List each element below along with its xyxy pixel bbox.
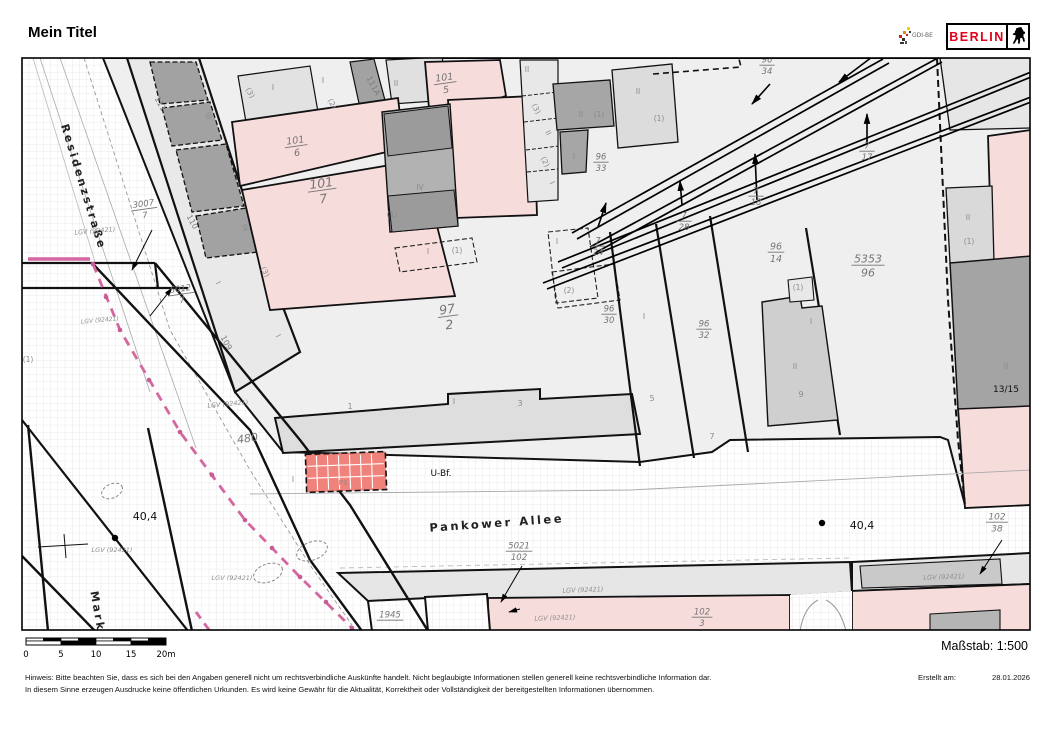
map-label: II — [636, 87, 640, 96]
svg-text:28: 28 — [679, 223, 690, 233]
map-label: (1) — [594, 110, 605, 119]
map-label: I — [556, 237, 558, 246]
svg-text:7: 7 — [864, 142, 870, 152]
map-label: LGV (92421) — [534, 613, 575, 622]
parcel-number: 9614 — [768, 242, 785, 265]
parcel-102-3 — [488, 595, 790, 631]
map-label: LGV (92421) — [212, 574, 253, 582]
svg-text:96: 96 — [762, 56, 773, 66]
map-label: I — [292, 475, 294, 484]
scale-bar: 05101520m — [23, 638, 175, 660]
svg-text:7: 7 — [753, 187, 759, 197]
building — [388, 190, 458, 232]
parcel-number: 9630 — [601, 305, 616, 326]
map-label: II — [793, 362, 797, 371]
map-label: 5 — [649, 394, 654, 403]
svg-text:34: 34 — [762, 67, 773, 77]
svg-text:32: 32 — [699, 331, 710, 341]
map-label: 40,4 — [133, 510, 158, 523]
scale-tick: 5 — [58, 650, 63, 660]
map-label: (1) — [654, 114, 665, 123]
map-label: I — [272, 83, 274, 92]
created-date: 28.01.2026 — [992, 673, 1030, 682]
point-marker — [112, 535, 118, 541]
street-gap — [790, 591, 852, 631]
svg-text:102: 102 — [988, 513, 1005, 523]
building — [553, 80, 614, 130]
map-label: I — [810, 317, 812, 326]
svg-text:102: 102 — [694, 608, 710, 618]
map-label: LGV (92421) — [92, 546, 133, 554]
map-label: LGV (92421) — [923, 572, 964, 581]
map-label: IV — [416, 183, 424, 192]
map-label: II — [579, 110, 583, 119]
svg-text:7: 7 — [681, 212, 687, 222]
map-label: I — [643, 312, 645, 321]
map-label: (1) — [387, 210, 398, 219]
map-label: II — [525, 65, 529, 74]
map-label: I — [427, 247, 429, 256]
created-label: Erstellt am: — [918, 673, 956, 682]
map-canvas: ResidenzstraßePankower AlleeMarkU-Bf.40,… — [0, 0, 1052, 743]
street-notch — [425, 594, 490, 631]
map-label: 3 — [517, 399, 522, 408]
map-label: 9 — [798, 390, 803, 399]
scale-tick: 0 — [23, 650, 28, 660]
map-label: II — [394, 79, 398, 88]
svg-text:18: 18 — [751, 198, 762, 208]
building — [930, 610, 1000, 631]
parcel-number: 1945 — [377, 611, 403, 621]
parcel-pink-right-top — [988, 130, 1031, 265]
svg-text:38: 38 — [991, 524, 1003, 534]
scale-tick: 15 — [126, 650, 137, 660]
map-label: (1) — [23, 355, 34, 364]
map-label: I — [453, 397, 455, 406]
map-label: (2) — [564, 286, 575, 295]
scale-tick: 10 — [91, 650, 102, 660]
parcel-pink-right-low — [958, 402, 1031, 508]
svg-text:24: 24 — [593, 248, 604, 258]
svg-text:5021: 5021 — [508, 542, 530, 552]
disclaimer-line-2: In diesem Sinne erzeugen Ausdrucke keine… — [25, 684, 910, 696]
parcel-number: 9633 — [593, 153, 608, 174]
building — [946, 186, 994, 263]
map-label: 13/15 — [993, 385, 1019, 395]
svg-text:1945: 1945 — [379, 611, 401, 621]
print-page: Mein Titel GDI-BE BERLIN — [0, 0, 1052, 743]
svg-text:102: 102 — [511, 553, 527, 563]
svg-text:3: 3 — [699, 619, 704, 629]
parcel-number: 9632 — [696, 320, 711, 341]
svg-text:96: 96 — [770, 242, 782, 253]
point-marker — [819, 520, 825, 526]
svg-text:5353: 5353 — [854, 253, 882, 266]
map-label: II — [966, 213, 970, 222]
svg-text:96: 96 — [699, 320, 710, 330]
svg-text:96: 96 — [604, 305, 615, 315]
svg-text:7: 7 — [595, 237, 601, 247]
map-label: I — [322, 76, 324, 85]
map-label: LGV (92421) — [562, 585, 603, 594]
svg-text:33: 33 — [596, 164, 607, 174]
svg-text:14: 14 — [770, 254, 782, 265]
map-label: (1) — [964, 237, 975, 246]
map-label: 40,4 — [850, 519, 875, 532]
map-label: 1 — [347, 402, 352, 411]
map-label: (1) — [452, 246, 463, 255]
map-label: P3 — [339, 479, 348, 487]
map-label: U-Bf. — [430, 469, 451, 479]
svg-text:30: 30 — [604, 316, 615, 326]
scale-label: Maßstab: 1:500 — [850, 639, 1028, 653]
map-label: II — [1004, 362, 1008, 371]
svg-text:96: 96 — [596, 153, 607, 163]
svg-text:17: 17 — [862, 153, 873, 163]
disclaimer-line-1: Hinweis: Bitte beachten Sie, dass es sic… — [25, 672, 910, 684]
disclaimer-text: Hinweis: Bitte beachten Sie, dass es sic… — [25, 672, 910, 695]
map-label: (1) — [793, 283, 804, 292]
scale-tick: 20m — [156, 650, 175, 660]
created-block: Erstellt am: 28.01.2026 — [918, 673, 1030, 682]
map-label: 7 — [709, 432, 714, 441]
building — [612, 64, 678, 148]
building — [384, 106, 452, 156]
map-label: I — [573, 152, 575, 161]
svg-text:96: 96 — [861, 267, 875, 280]
